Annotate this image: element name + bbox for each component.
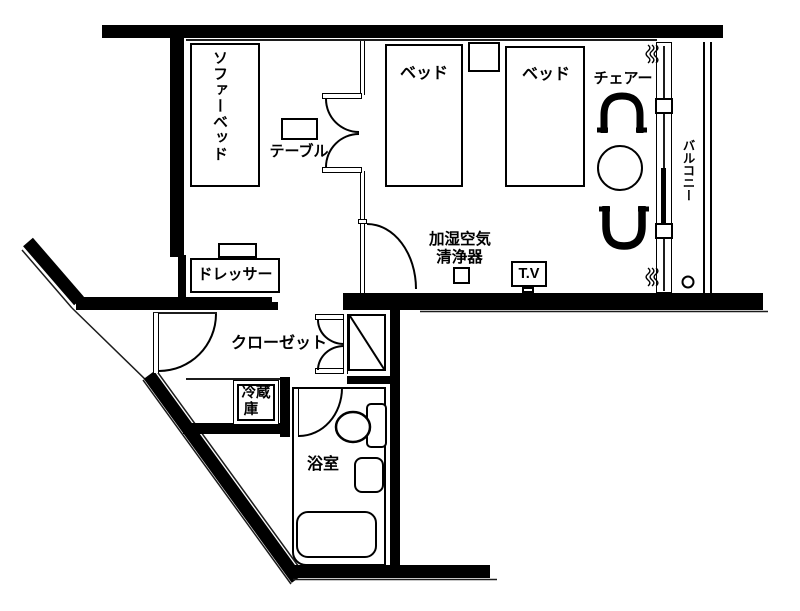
closet-shelf-diagonal bbox=[350, 316, 384, 369]
toilet-bowl bbox=[336, 412, 370, 442]
air-purifier-label-line2: 清浄器 bbox=[432, 249, 487, 266]
balcony-label: バルコニー bbox=[681, 139, 694, 215]
dresser-label: ドレッサー bbox=[195, 267, 275, 284]
floor-plan: ソファーベッド テーブル ベッド ベッド チェアー バルコニー ドレッサー 加湿… bbox=[0, 0, 800, 611]
fridge-label-line1: 冷蔵 bbox=[240, 385, 272, 401]
closet-label: クローゼット bbox=[231, 335, 319, 353]
table-label: テーブル bbox=[269, 144, 329, 161]
bed-right-label: ベッド bbox=[516, 66, 576, 84]
chair-top bbox=[604, 96, 640, 133]
curtain-squiggle-icon-top bbox=[646, 45, 658, 63]
tv-label: T.V bbox=[511, 266, 547, 282]
sofa-bed-label: ソファーベッド bbox=[212, 50, 227, 182]
air-purifier-label-line1: 加湿空気 bbox=[427, 231, 493, 248]
balcony-drain bbox=[683, 277, 694, 288]
chair-bottom bbox=[606, 206, 642, 246]
fridge-label-line2: 庫 bbox=[237, 402, 265, 418]
bed-left-label: ベッド bbox=[394, 65, 454, 83]
bathroom-label: 浴室 bbox=[303, 456, 343, 474]
symbols-layer bbox=[0, 0, 800, 611]
chair-label: チェアー bbox=[592, 71, 654, 88]
curtain-squiggle-icon-bottom bbox=[646, 268, 658, 286]
